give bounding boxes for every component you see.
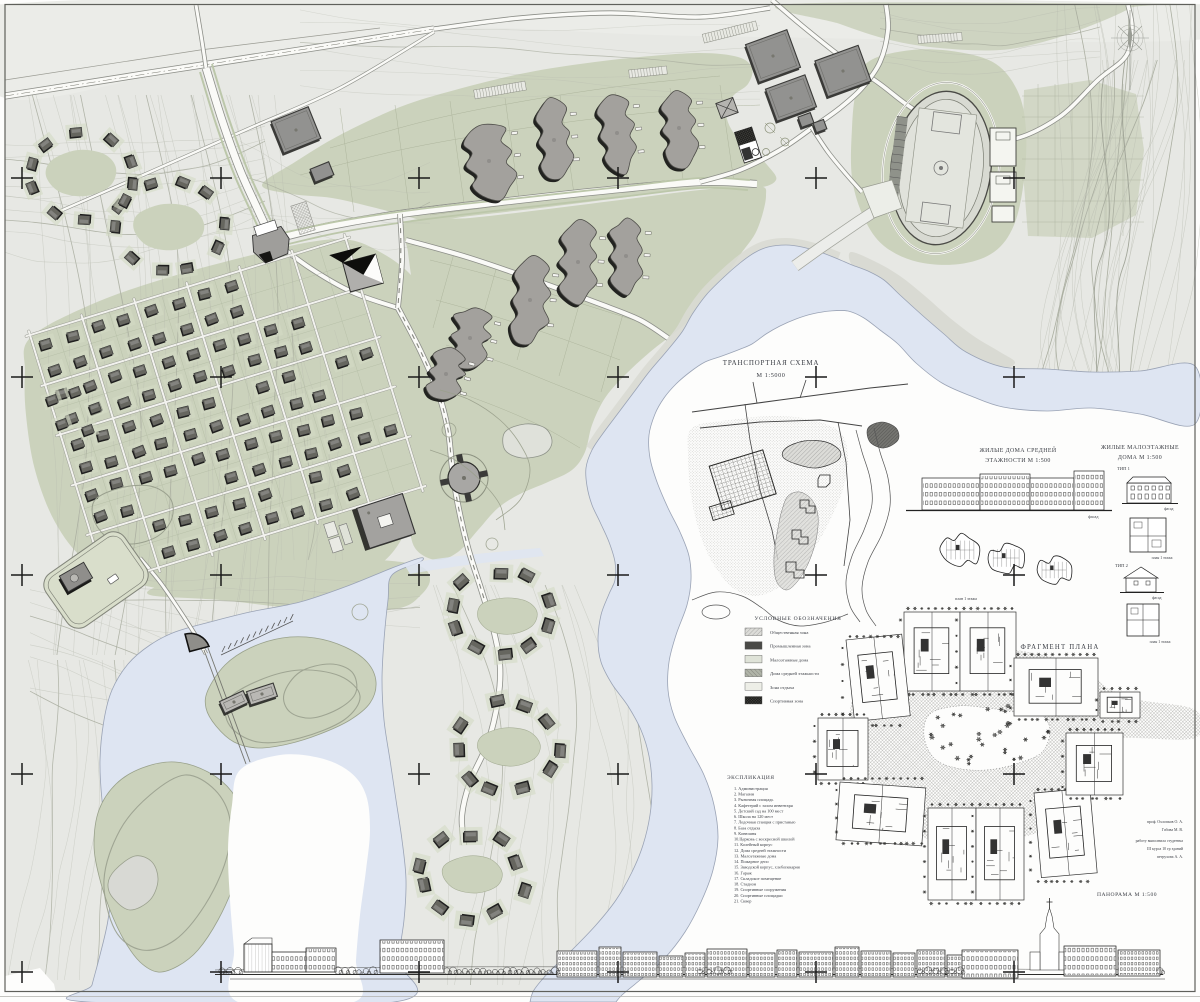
- svg-text:план 1 этажа: план 1 этажа: [955, 596, 977, 601]
- svg-text:Габова М. В.: Габова М. В.: [1162, 828, 1183, 832]
- svg-text:петрухова А. А.: петрухова А. А.: [1157, 855, 1183, 859]
- svg-text:Дома средней этажности: Дома средней этажности: [770, 671, 819, 676]
- svg-text:работу выполнила студентка: работу выполнила студентка: [1136, 839, 1184, 843]
- svg-text:фасад: фасад: [1088, 514, 1099, 519]
- svg-text:ТРАНСПОРТНАЯ СХЕМА: ТРАНСПОРТНАЯ СХЕМА: [723, 359, 819, 367]
- svg-text:1. Администрация: 1. Администрация: [734, 786, 768, 791]
- svg-text:ЭТАЖНОСТИ М 1:500: ЭТАЖНОСТИ М 1:500: [985, 458, 1051, 464]
- svg-text:19. Спортивные сооружения: 19. Спортивные сооружения: [734, 887, 786, 892]
- svg-text:ЭКСПЛИКАЦИЯ: ЭКСПЛИКАЦИЯ: [727, 775, 775, 781]
- svg-text:4. Кафетерий с залом инвентар: 4. Кафетерий с залом инвентаря: [734, 803, 793, 808]
- svg-text:11. Колейный корпус: 11. Колейный корпус: [734, 842, 773, 847]
- svg-text:ЖИЛЫЕ ДОМА СРЕДНЕЙ: ЖИЛЫЕ ДОМА СРЕДНЕЙ: [979, 446, 1056, 454]
- svg-text:Спортивная зона: Спортивная зона: [770, 699, 803, 704]
- svg-text:10.Церковь с воскресной школой: 10.Церковь с воскресной школой: [734, 837, 795, 842]
- svg-text:Зона отдыха: Зона отдыха: [770, 685, 794, 690]
- svg-text:14. Пожарное депо: 14. Пожарное депо: [734, 859, 769, 864]
- svg-text:план 1 этажа: план 1 этажа: [1150, 640, 1171, 644]
- svg-text:7. Лодочная станция с пристан: 7. Лодочная станция с пристанью: [734, 820, 796, 825]
- svg-text:8. База отдыха: 8. База отдыха: [734, 825, 760, 830]
- svg-text:М 1:5000: М 1:5000: [756, 372, 785, 379]
- svg-text:Промышленная зона: Промышленная зона: [770, 644, 811, 649]
- svg-text:ПАНОРАМА М 1:500: ПАНОРАМА М 1:500: [1097, 892, 1157, 898]
- svg-text:ДОМА М 1:500: ДОМА М 1:500: [1118, 455, 1162, 461]
- svg-text:УСЛОВНЫЕ ОБОЗНАЧЕНИЯ: УСЛОВНЫЕ ОБОЗНАЧЕНИЯ: [755, 616, 842, 622]
- svg-text:5. Детский сад на 100 мест: 5. Детский сад на 100 мест: [734, 808, 783, 813]
- svg-text:ФРАГМЕНТ ПЛАНА: ФРАГМЕНТ ПЛАНА: [1020, 644, 1099, 651]
- svg-text:18. Стадион: 18. Стадион: [734, 882, 757, 887]
- svg-text:план 1 этажа: план 1 этажа: [1152, 556, 1173, 560]
- svg-text:2. Магазин: 2. Магазин: [734, 792, 755, 797]
- svg-text:12. Дома средней этажности: 12. Дома средней этажности: [734, 848, 787, 853]
- svg-text:9. Конюшня: 9. Конюшня: [734, 831, 756, 836]
- svg-text:ЖИЛЫЕ МАЛОЭТАЖНЫЕ: ЖИЛЫЕ МАЛОЭТАЖНЫЕ: [1101, 445, 1179, 451]
- svg-text:ТИП 2: ТИП 2: [1115, 563, 1129, 568]
- svg-text:фасад: фасад: [1164, 507, 1174, 511]
- svg-text:17. Складское помещение: 17. Складское помещение: [734, 876, 781, 881]
- svg-text:проф. Охлопков О. А.: проф. Охлопков О. А.: [1147, 820, 1183, 824]
- svg-text:20. Спортивные площадки: 20. Спортивные площадки: [734, 893, 783, 898]
- svg-text:III курса 10 гр зданий: III курса 10 гр зданий: [1147, 847, 1183, 851]
- svg-text:фасад: фасад: [1152, 596, 1162, 600]
- svg-text:6. Школа на 120 мест: 6. Школа на 120 мест: [734, 814, 773, 819]
- svg-text:ТИП 1: ТИП 1: [1117, 466, 1131, 471]
- svg-text:16. Гараж: 16. Гараж: [734, 870, 752, 875]
- svg-text:13. Малоэтажные дома: 13. Малоэтажные дома: [734, 853, 776, 858]
- svg-text:Общественная зона: Общественная зона: [770, 630, 808, 635]
- svg-text:3. Рыночная площадь: 3. Рыночная площадь: [734, 797, 773, 802]
- svg-text:21. Сквер: 21. Сквер: [734, 898, 751, 903]
- svg-text:Малоэтажные дома: Малоэтажные дома: [770, 657, 808, 662]
